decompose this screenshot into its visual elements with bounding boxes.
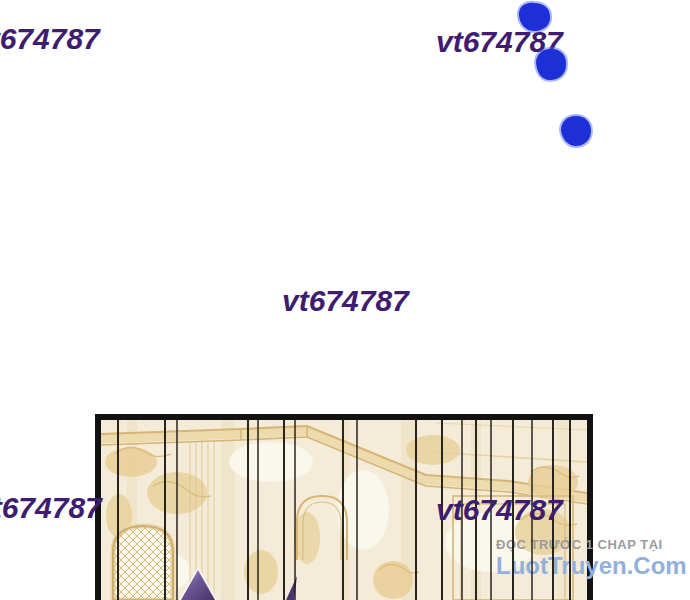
watermark-bottom-right: vt674787 — [436, 495, 563, 525]
site-link-text: LuotTruyen.Com — [496, 552, 687, 580]
site-credit-text: ĐỌC TRƯỚC 1 CHAP TẠI — [496, 537, 663, 552]
watermark-top-left: vt674787 — [0, 24, 100, 54]
watermark-bottom-left: vt674787 — [0, 493, 102, 523]
watermark-top-right: vt674787 — [436, 27, 563, 57]
ink-blot — [561, 116, 591, 146]
lattice-pattern — [113, 526, 173, 600]
watermark-center: vt674787 — [282, 286, 409, 316]
